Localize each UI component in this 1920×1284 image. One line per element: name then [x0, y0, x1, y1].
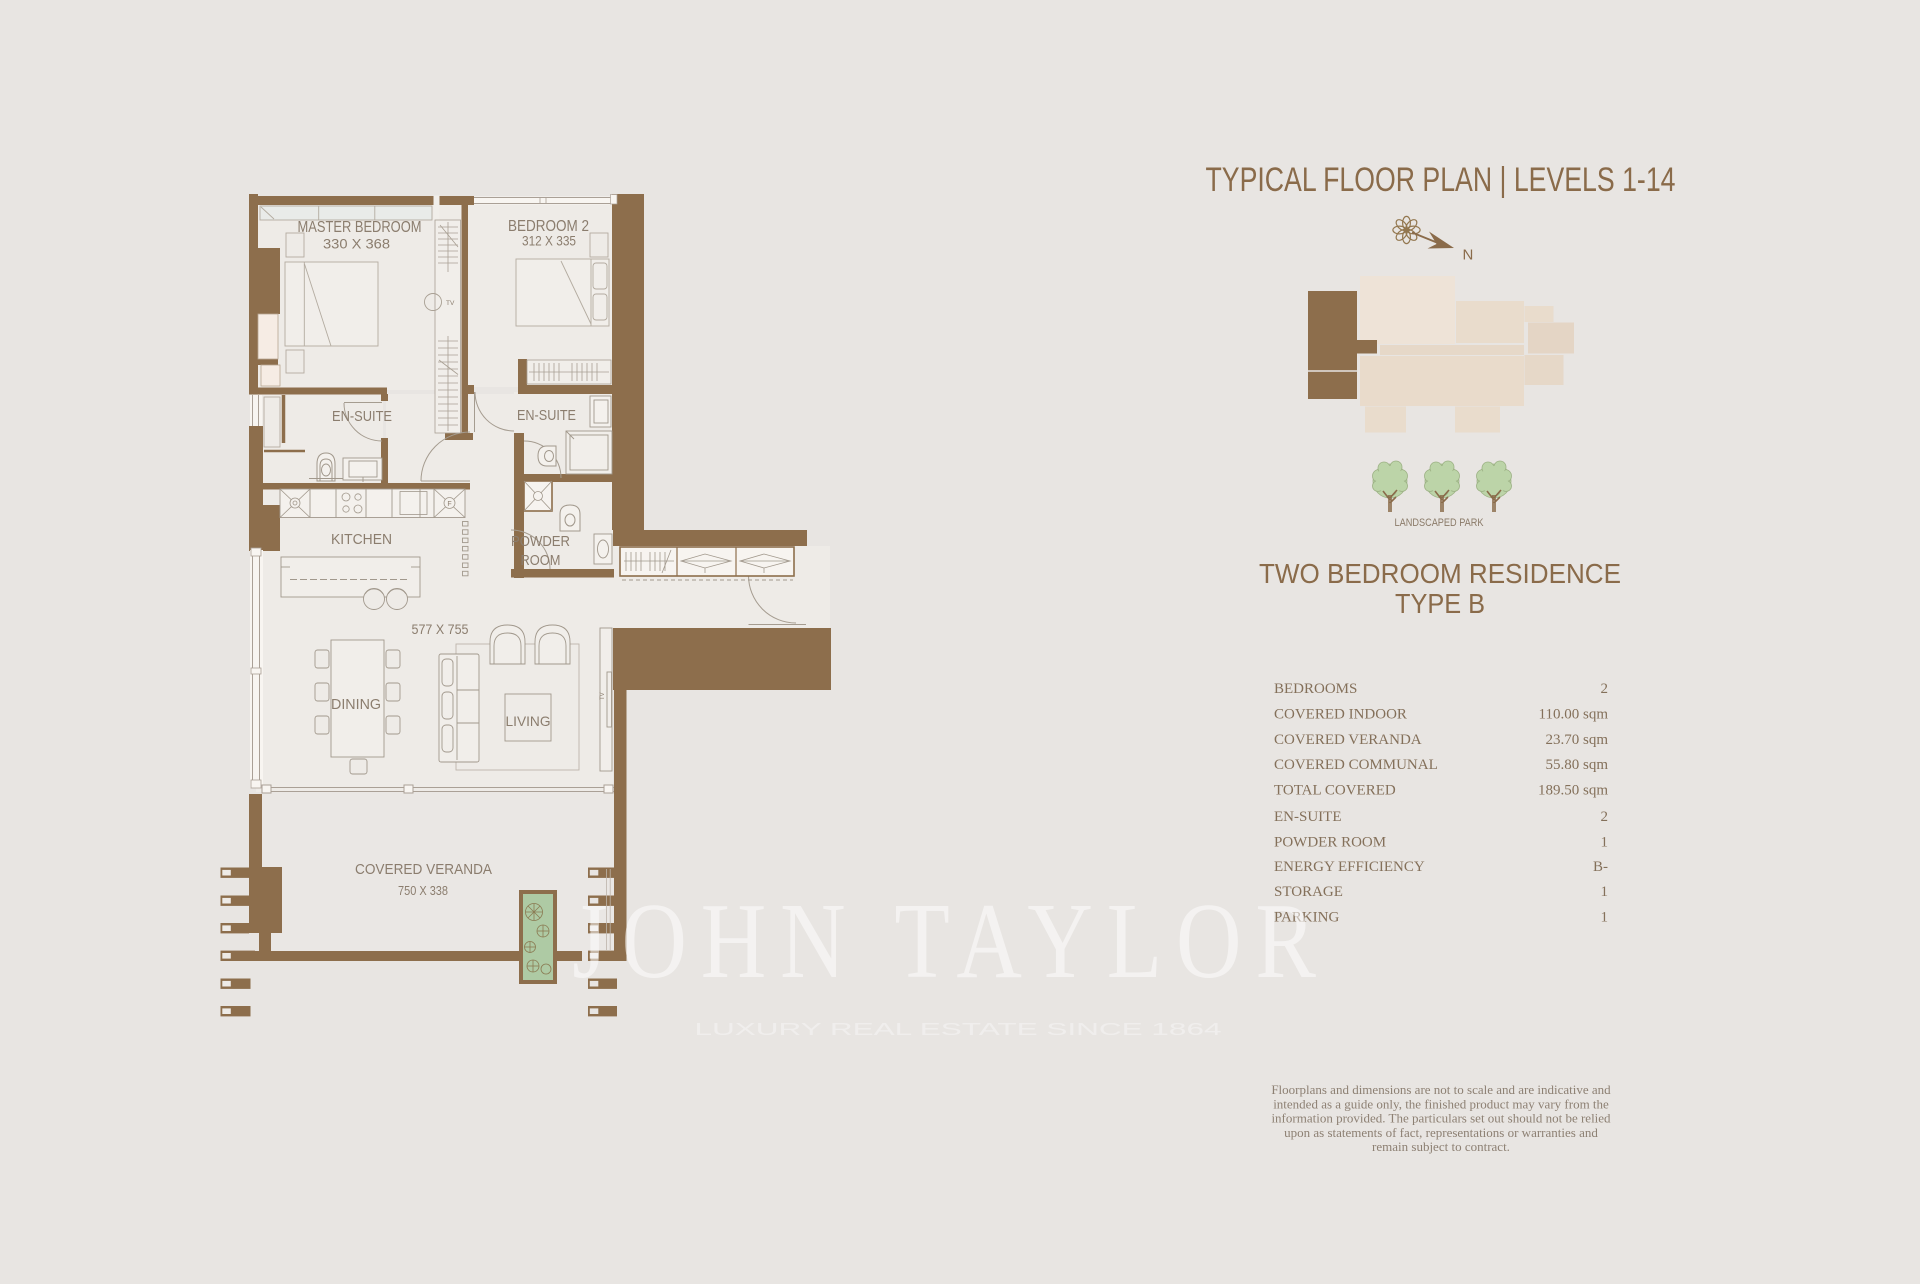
svg-text:upon as statements of fact, re: upon as statements of fact, representati…	[1284, 1125, 1598, 1140]
svg-text:POWDER ROOM: POWDER ROOM	[1274, 834, 1386, 850]
svg-text:1: 1	[1601, 834, 1609, 850]
svg-text:COVERED VERANDA: COVERED VERANDA	[1274, 732, 1422, 748]
svg-text:TWO BEDROOM RESIDENCE: TWO BEDROOM RESIDENCE	[1259, 558, 1621, 589]
svg-text:EN-SUITE: EN-SUITE	[1274, 809, 1342, 825]
svg-text:23.70 sqm: 23.70 sqm	[1545, 732, 1608, 748]
svg-text:F: F	[447, 501, 451, 508]
svg-text:ENERGY EFFICIENCY: ENERGY EFFICIENCY	[1274, 859, 1425, 875]
svg-text:B-: B-	[1593, 859, 1608, 875]
svg-text:312 X 335: 312 X 335	[522, 233, 576, 249]
svg-text:TYPE B: TYPE B	[1395, 588, 1485, 619]
svg-text:2: 2	[1601, 681, 1609, 697]
svg-text:TV: TV	[600, 692, 606, 700]
svg-text:EN-SUITE: EN-SUITE	[517, 407, 576, 424]
svg-text:information provided. The part: information provided. The particulars se…	[1271, 1111, 1611, 1126]
svg-text:intended as a guide only, the: intended as a guide only, the finished p…	[1273, 1096, 1609, 1111]
svg-text:Floorplans and dimensions are: Floorplans and dimensions are not to sca…	[1271, 1082, 1611, 1097]
svg-text:ROOM: ROOM	[521, 552, 561, 569]
svg-text:COVERED VERANDA: COVERED VERANDA	[355, 861, 492, 878]
svg-text:MASTER BEDROOM: MASTER BEDROOM	[298, 219, 422, 236]
svg-text:DINING: DINING	[331, 696, 381, 713]
svg-text:JOHN TAYLOR: JOHN TAYLOR	[572, 881, 1330, 1001]
svg-text:1: 1	[1601, 884, 1609, 900]
svg-text:BEDROOMS: BEDROOMS	[1274, 681, 1357, 697]
svg-text:189.50 sqm: 189.50 sqm	[1538, 783, 1608, 799]
svg-text:330 X 368: 330 X 368	[323, 236, 390, 252]
svg-text:COVERED COMMUNAL: COVERED COMMUNAL	[1274, 757, 1438, 773]
svg-text:LANDSCAPED PARK: LANDSCAPED PARK	[1395, 517, 1485, 529]
svg-text:2: 2	[1601, 809, 1609, 825]
svg-text:EN-SUITE: EN-SUITE	[332, 408, 392, 425]
svg-text:remain subject to contract.: remain subject to contract.	[1372, 1139, 1510, 1154]
svg-text:750 X 338: 750 X 338	[398, 883, 448, 898]
svg-text:TV: TV	[446, 300, 455, 307]
svg-text:TYPICAL FLOOR PLAN | LEVELS 1-: TYPICAL FLOOR PLAN | LEVELS 1-14	[1206, 161, 1676, 199]
svg-text:LUXURY REAL ESTATE SINCE 1864: LUXURY REAL ESTATE SINCE 1864	[695, 1019, 1222, 1039]
svg-text:POWDER: POWDER	[511, 533, 570, 550]
svg-text:KITCHEN: KITCHEN	[331, 531, 392, 548]
svg-text:577 X 755: 577 X 755	[412, 621, 469, 637]
svg-text:TOTAL COVERED: TOTAL COVERED	[1274, 783, 1396, 799]
svg-text:1: 1	[1601, 910, 1609, 926]
svg-text:55.80 sqm: 55.80 sqm	[1545, 757, 1608, 773]
svg-text:COVERED INDOOR: COVERED INDOOR	[1274, 706, 1407, 722]
svg-text:110.00 sqm: 110.00 sqm	[1539, 706, 1609, 722]
svg-text:N: N	[1463, 247, 1474, 264]
svg-text:LIVING: LIVING	[506, 713, 551, 729]
